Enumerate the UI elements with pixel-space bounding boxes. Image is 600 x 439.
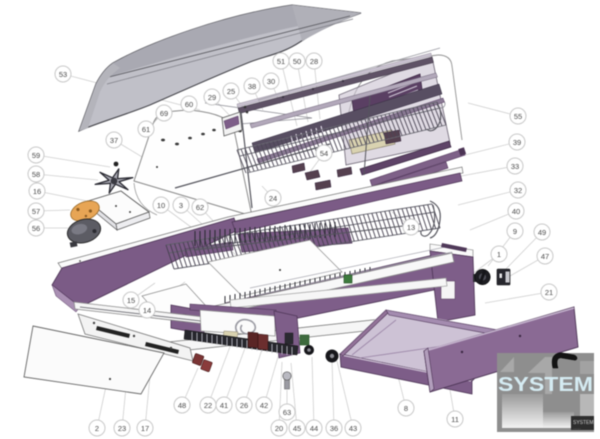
svg-text:24: 24 — [269, 194, 277, 203]
svg-text:15: 15 — [127, 296, 135, 305]
svg-text:23: 23 — [118, 424, 126, 433]
svg-text:22: 22 — [204, 401, 212, 410]
svg-text:48: 48 — [178, 401, 186, 410]
svg-text:47: 47 — [541, 252, 549, 261]
svg-text:62: 62 — [196, 203, 204, 212]
svg-text:49: 49 — [538, 228, 546, 237]
svg-text:14: 14 — [143, 306, 151, 315]
svg-text:36: 36 — [330, 424, 338, 433]
svg-text:54: 54 — [320, 149, 328, 158]
svg-text:37: 37 — [110, 136, 118, 145]
svg-text:30: 30 — [267, 77, 275, 86]
svg-text:45: 45 — [293, 424, 301, 433]
svg-text:53: 53 — [59, 70, 67, 79]
svg-text:56: 56 — [32, 224, 40, 233]
svg-text:63: 63 — [283, 408, 291, 417]
svg-text:61: 61 — [142, 125, 150, 134]
svg-text:59: 59 — [32, 151, 40, 160]
svg-text:57: 57 — [32, 207, 40, 216]
svg-text:60: 60 — [185, 100, 193, 109]
svg-text:13: 13 — [407, 223, 415, 232]
svg-text:41: 41 — [220, 401, 228, 410]
svg-text:44: 44 — [310, 424, 318, 433]
svg-text:38: 38 — [248, 82, 256, 91]
svg-text:58: 58 — [32, 170, 40, 179]
svg-text:11: 11 — [451, 415, 459, 424]
svg-text:16: 16 — [33, 187, 41, 196]
svg-text:3: 3 — [179, 201, 183, 210]
svg-text:20: 20 — [275, 424, 283, 433]
svg-text:21: 21 — [545, 288, 553, 297]
svg-text:.......: ....... — [573, 425, 581, 430]
svg-text:2: 2 — [95, 424, 99, 433]
svg-text:8: 8 — [404, 404, 408, 413]
svg-text:10: 10 — [157, 201, 165, 210]
svg-text:28: 28 — [310, 57, 318, 66]
svg-text:33: 33 — [511, 162, 519, 171]
svg-text:26: 26 — [240, 401, 248, 410]
svg-text:1: 1 — [497, 250, 501, 259]
svg-text:9: 9 — [513, 227, 517, 236]
svg-text:17: 17 — [141, 424, 149, 433]
svg-text:55: 55 — [514, 112, 522, 121]
svg-text:51: 51 — [277, 57, 285, 66]
svg-text:32: 32 — [514, 186, 522, 195]
svg-text:69: 69 — [160, 109, 168, 118]
svg-text:50: 50 — [293, 57, 301, 66]
svg-text:25: 25 — [227, 87, 235, 96]
svg-text:39: 39 — [513, 138, 521, 147]
svg-text:29: 29 — [208, 93, 216, 102]
svg-text:42: 42 — [260, 401, 268, 410]
svg-text:43: 43 — [349, 424, 357, 433]
svg-text:SYSTEM: SYSTEM — [498, 374, 593, 396]
svg-text:40: 40 — [512, 207, 520, 216]
